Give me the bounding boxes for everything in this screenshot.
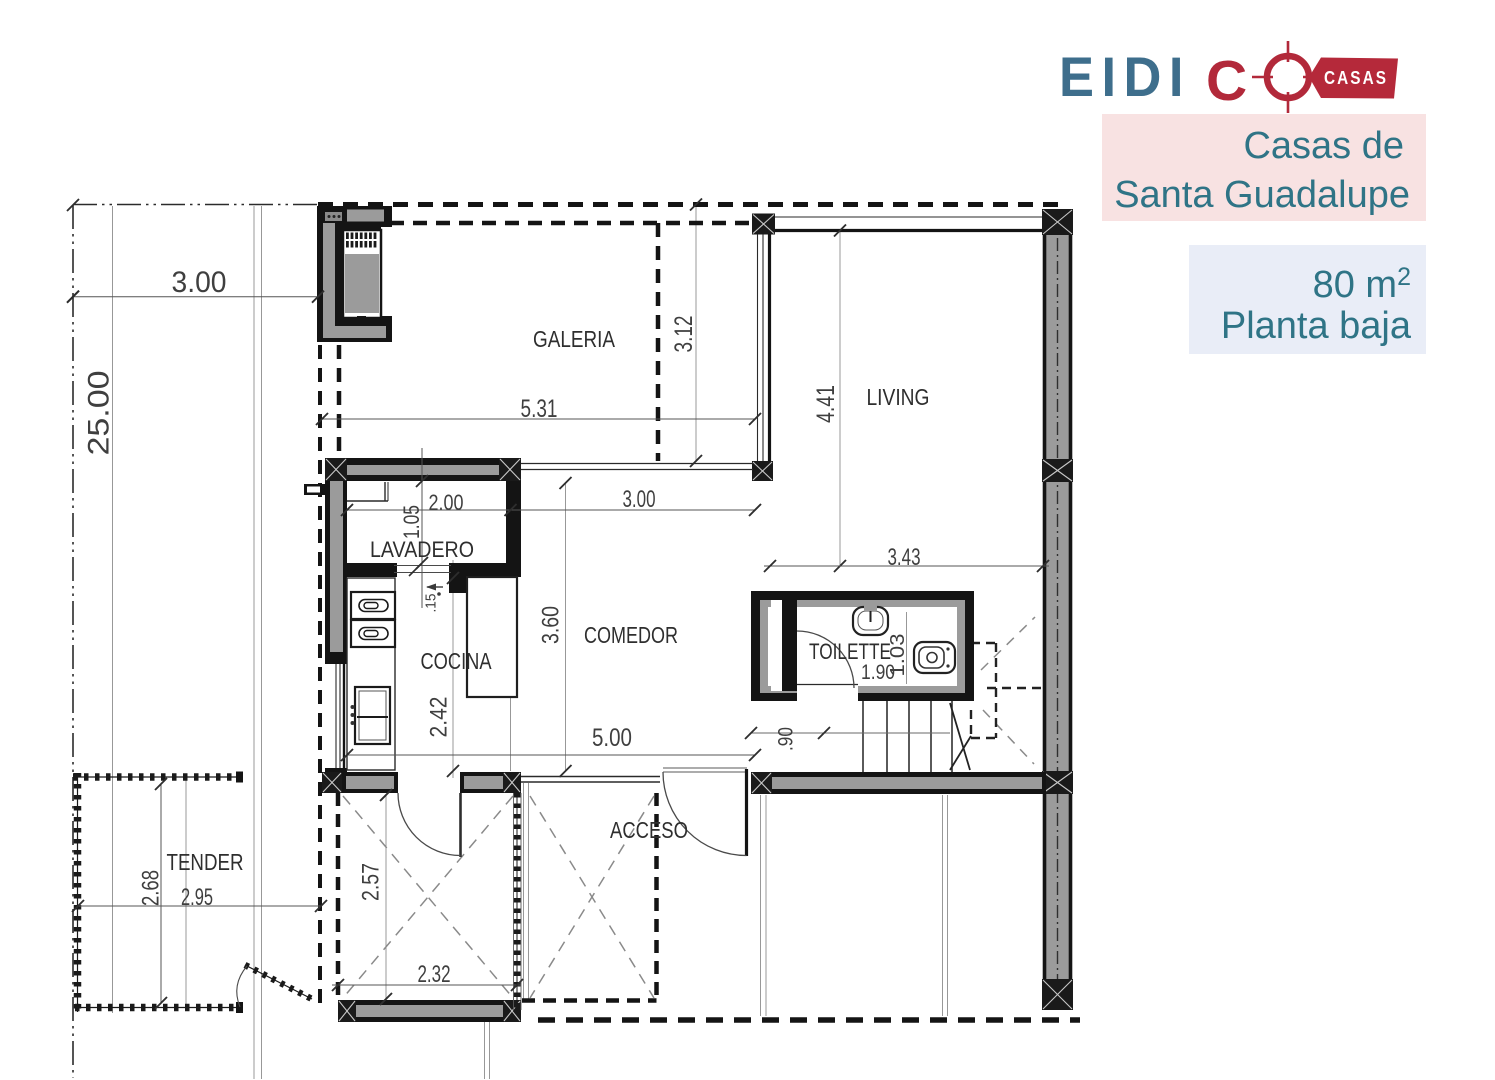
svg-text:LIVING: LIVING — [867, 384, 930, 410]
svg-text:.90: .90 — [775, 727, 798, 751]
svg-text:TENDER: TENDER — [167, 849, 244, 875]
svg-text:EIDI: EIDI — [1059, 45, 1191, 108]
svg-text:3.60: 3.60 — [538, 606, 565, 644]
svg-text:GALERIA: GALERIA — [533, 326, 616, 352]
svg-text:3.00: 3.00 — [172, 266, 227, 299]
svg-text:80 m2: 80 m2 — [1313, 263, 1411, 306]
svg-text:2.32: 2.32 — [418, 961, 451, 988]
svg-text:3.00: 3.00 — [623, 486, 656, 513]
svg-text:25.00: 25.00 — [82, 371, 115, 456]
svg-text:LAVADERO: LAVADERO — [370, 537, 474, 562]
svg-text:ACCESO: ACCESO — [610, 817, 688, 843]
svg-text:Santa Guadalupe: Santa Guadalupe — [1114, 174, 1410, 216]
svg-text:Planta baja: Planta baja — [1221, 305, 1412, 347]
svg-text:4.41: 4.41 — [812, 385, 840, 423]
svg-text:Casas de: Casas de — [1243, 125, 1404, 167]
svg-text:COCINA: COCINA — [421, 648, 493, 674]
svg-text:5.00: 5.00 — [592, 724, 632, 752]
svg-text:3.43: 3.43 — [888, 544, 921, 571]
svg-text:5.31: 5.31 — [521, 395, 558, 423]
svg-text:TOILETTE: TOILETTE — [809, 639, 891, 664]
svg-text:2.57: 2.57 — [358, 863, 385, 901]
svg-text:CASAS: CASAS — [1324, 67, 1388, 88]
svg-text:2.68: 2.68 — [138, 870, 165, 906]
svg-text:C: C — [1206, 49, 1247, 113]
svg-text:COMEDOR: COMEDOR — [584, 622, 678, 648]
svg-text:1.05: 1.05 — [399, 505, 424, 539]
svg-text:2.42: 2.42 — [426, 697, 453, 738]
svg-text:2.00: 2.00 — [429, 490, 464, 515]
svg-text:3.12: 3.12 — [670, 316, 698, 353]
svg-text:.15: .15 — [422, 594, 439, 613]
svg-text:2.95: 2.95 — [181, 884, 213, 911]
